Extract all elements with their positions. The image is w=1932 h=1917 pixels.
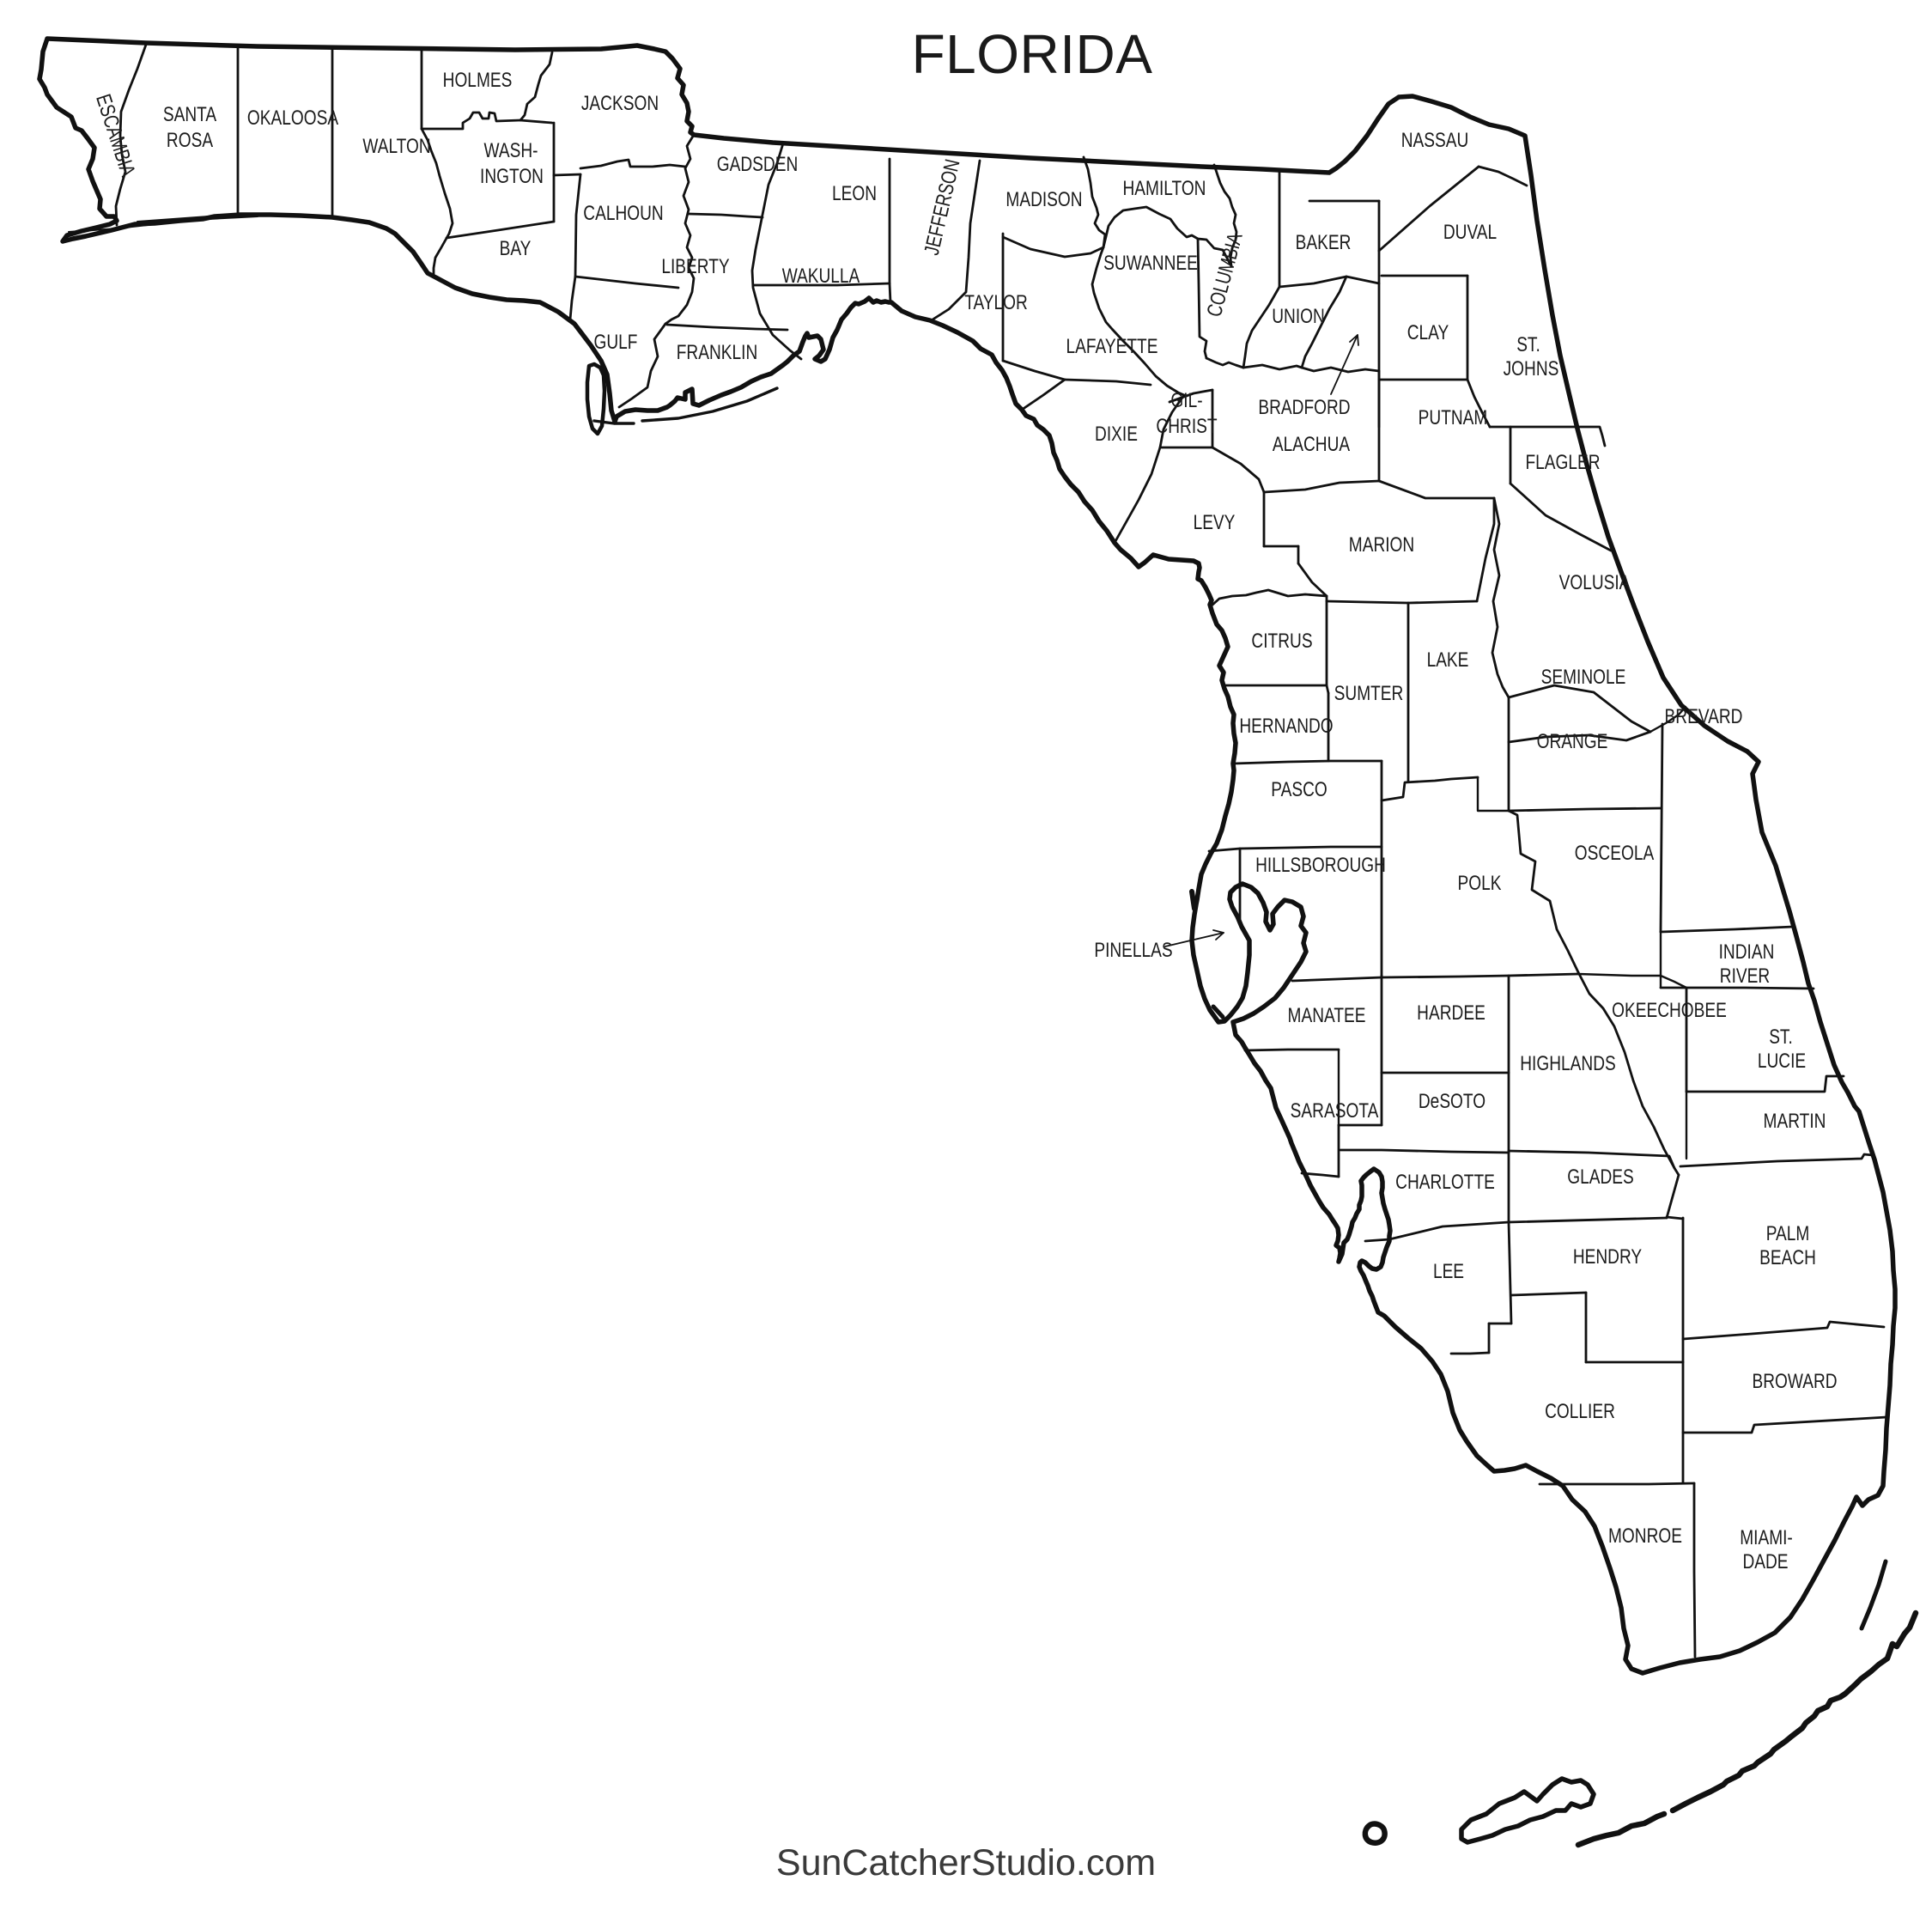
svg-text:SANTA: SANTA	[163, 102, 217, 126]
svg-text:DIXIE: DIXIE	[1095, 422, 1138, 446]
svg-text:BAKER: BAKER	[1296, 230, 1352, 254]
svg-text:LAKE: LAKE	[1427, 648, 1469, 672]
svg-text:FLAGLER: FLAGLER	[1525, 450, 1600, 474]
svg-text:HARDEE: HARDEE	[1417, 1001, 1485, 1025]
svg-text:MANATEE: MANATEE	[1288, 1003, 1366, 1027]
svg-text:HILLSBOROUGH: HILLSBOROUGH	[1255, 853, 1386, 877]
svg-text:MIAMI-: MIAMI-	[1740, 1525, 1793, 1549]
svg-text:HERNANDO: HERNANDO	[1239, 714, 1333, 738]
svg-text:GIL-: GIL-	[1170, 388, 1202, 412]
svg-text:HAMILTON: HAMILTON	[1123, 176, 1206, 200]
svg-text:CALHOUN: CALHOUN	[583, 201, 663, 225]
svg-text:INDIAN: INDIAN	[1719, 940, 1775, 964]
svg-text:CITRUS: CITRUS	[1251, 629, 1312, 653]
svg-text:HIGHLANDS: HIGHLANDS	[1520, 1051, 1615, 1075]
svg-text:WALTON: WALTON	[362, 134, 430, 158]
svg-text:CHARLOTTE: CHARLOTTE	[1395, 1170, 1495, 1194]
svg-text:WASH-: WASH-	[484, 138, 538, 162]
svg-text:NASSAU: NASSAU	[1401, 128, 1469, 152]
svg-text:SunCatcherStudio.com: SunCatcherStudio.com	[776, 1842, 1156, 1884]
svg-text:BEACH: BEACH	[1759, 1245, 1816, 1269]
svg-text:MARTIN: MARTIN	[1764, 1109, 1826, 1133]
svg-text:ALACHUA: ALACHUA	[1273, 432, 1351, 456]
svg-text:LUCIE: LUCIE	[1758, 1049, 1806, 1073]
svg-text:MONROE: MONROE	[1608, 1524, 1682, 1548]
svg-text:PINELLAS: PINELLAS	[1094, 938, 1172, 962]
svg-text:ST.: ST.	[1516, 332, 1540, 356]
svg-text:GADSDEN: GADSDEN	[717, 152, 799, 176]
svg-text:LEON: LEON	[832, 181, 877, 205]
svg-text:SARASOTA: SARASOTA	[1291, 1098, 1379, 1123]
svg-text:FLORIDA: FLORIDA	[912, 23, 1153, 85]
svg-text:BRADFORD: BRADFORD	[1258, 395, 1350, 419]
svg-text:MADISON: MADISON	[1005, 187, 1082, 211]
svg-text:PALM: PALM	[1766, 1221, 1810, 1245]
svg-text:GULF: GULF	[594, 330, 638, 354]
svg-text:SUWANNEE: SUWANNEE	[1103, 251, 1198, 275]
svg-text:COLLIER: COLLIER	[1545, 1399, 1615, 1423]
svg-text:SEMINOLE: SEMINOLE	[1541, 665, 1626, 689]
svg-text:OKEECHOBEE: OKEECHOBEE	[1612, 998, 1727, 1022]
svg-text:PUTNAM: PUTNAM	[1419, 405, 1488, 429]
svg-text:WAKULLA: WAKULLA	[782, 264, 860, 288]
svg-text:CHRIST: CHRIST	[1156, 414, 1217, 438]
svg-text:HENDRY: HENDRY	[1573, 1245, 1643, 1269]
svg-text:PASCO: PASCO	[1271, 777, 1327, 801]
svg-text:VOLUSIA: VOLUSIA	[1559, 570, 1631, 594]
svg-text:FRANKLIN: FRANKLIN	[677, 340, 758, 364]
svg-text:JOHNS: JOHNS	[1504, 356, 1559, 380]
svg-text:GLADES: GLADES	[1567, 1165, 1634, 1189]
svg-text:LEVY: LEVY	[1194, 510, 1236, 534]
svg-text:DADE: DADE	[1742, 1549, 1788, 1573]
svg-text:TAYLOR: TAYLOR	[964, 290, 1028, 314]
svg-text:OKALOOSA: OKALOOSA	[247, 106, 338, 130]
svg-text:ROSA: ROSA	[167, 128, 213, 152]
svg-text:OSCEOLA: OSCEOLA	[1575, 841, 1655, 865]
svg-text:SUMTER: SUMTER	[1334, 681, 1404, 705]
svg-text:BROWARD: BROWARD	[1752, 1369, 1837, 1393]
svg-text:JACKSON: JACKSON	[581, 91, 659, 115]
svg-text:CLAY: CLAY	[1407, 320, 1449, 344]
svg-text:LAFAYETTE: LAFAYETTE	[1066, 334, 1158, 358]
svg-text:ST.: ST.	[1769, 1025, 1793, 1049]
svg-text:LEE: LEE	[1433, 1259, 1464, 1283]
svg-text:BREVARD: BREVARD	[1665, 704, 1743, 728]
svg-text:RIVER: RIVER	[1720, 964, 1770, 988]
svg-text:LIBERTY: LIBERTY	[661, 254, 730, 278]
svg-text:ORANGE: ORANGE	[1537, 729, 1608, 753]
svg-text:BAY: BAY	[500, 236, 532, 260]
svg-text:INGTON: INGTON	[480, 164, 544, 188]
svg-text:DeSOTO: DeSOTO	[1419, 1089, 1485, 1113]
svg-text:HOLMES: HOLMES	[443, 68, 513, 92]
svg-text:DUVAL: DUVAL	[1443, 220, 1497, 244]
svg-text:MARION: MARION	[1349, 532, 1414, 557]
svg-text:UNION: UNION	[1272, 304, 1325, 328]
svg-text:POLK: POLK	[1458, 871, 1502, 895]
